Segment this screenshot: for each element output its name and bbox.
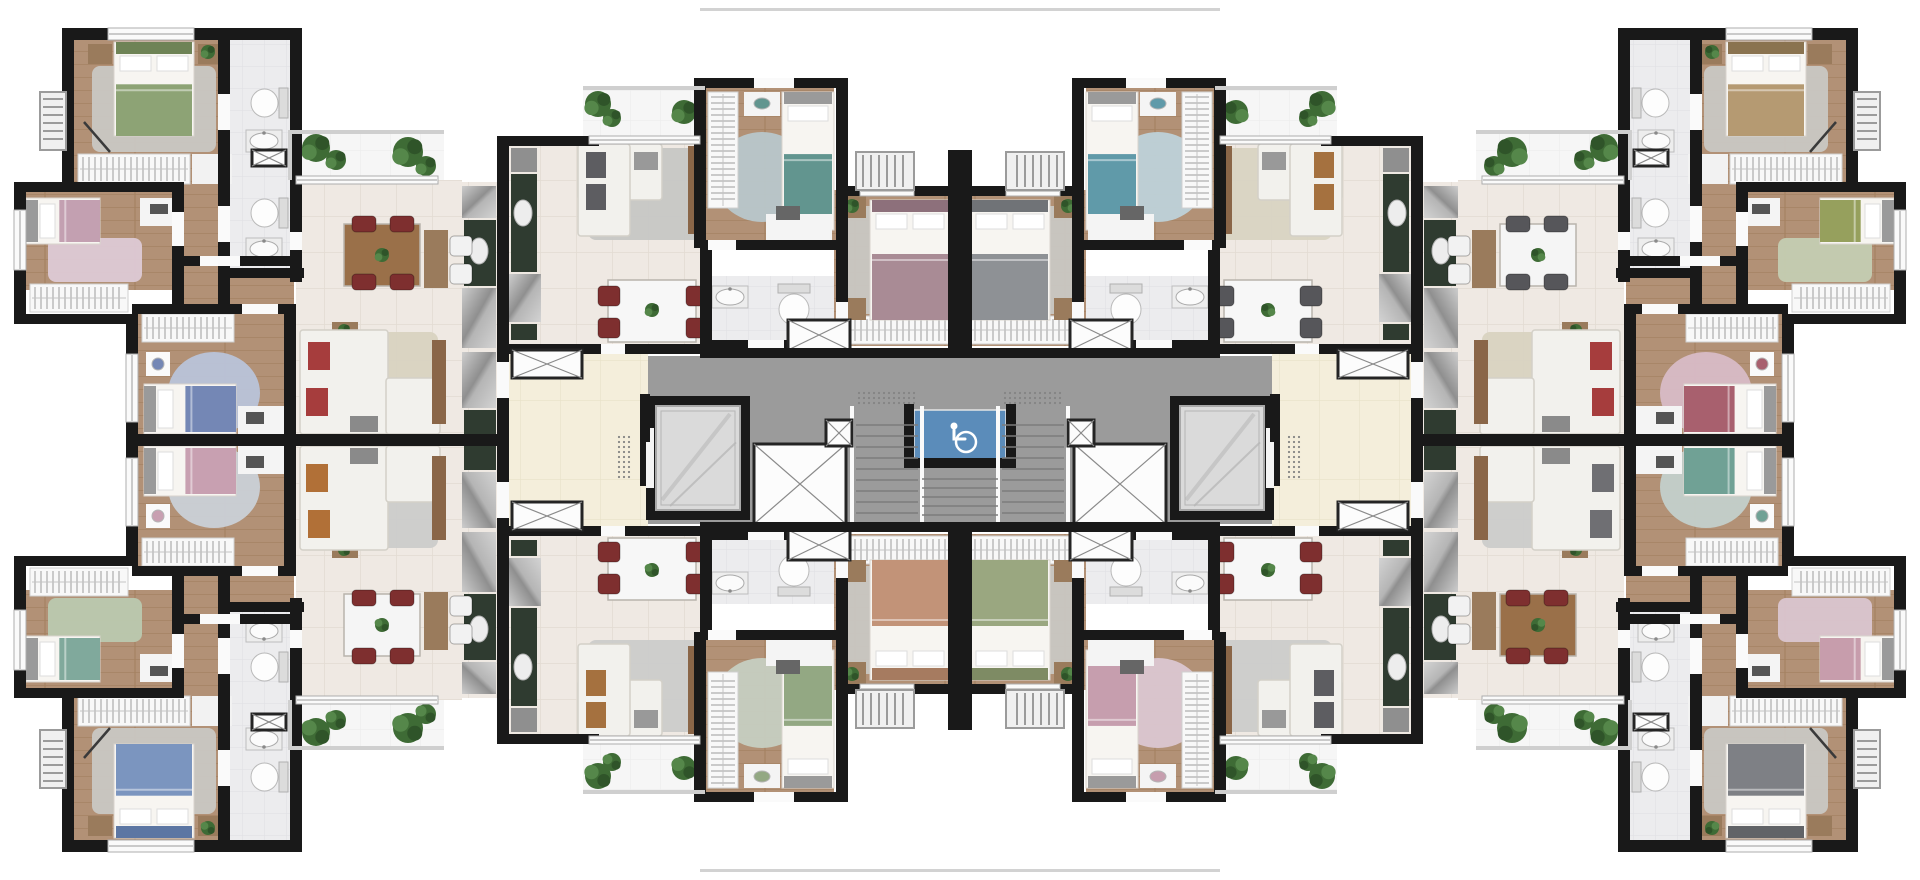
decor [470, 616, 488, 642]
floor [1379, 274, 1411, 322]
floor [1680, 256, 1720, 266]
chair [598, 318, 620, 338]
wall [497, 518, 509, 744]
wall [1616, 602, 1692, 612]
wall [1690, 786, 1702, 844]
wall [1784, 314, 1906, 324]
sofa [1480, 446, 1534, 502]
wall [836, 196, 848, 302]
balcony-railing [1476, 130, 1632, 134]
rug [48, 238, 142, 282]
toilet [1632, 652, 1669, 682]
chair [1506, 274, 1530, 290]
chair [1448, 624, 1470, 644]
balcony-railing [288, 130, 292, 180]
floor [462, 186, 496, 218]
bed [26, 198, 100, 244]
elevator-cab [656, 406, 740, 510]
chair [1448, 236, 1470, 256]
window [1482, 696, 1624, 704]
louver-window [1006, 152, 1064, 190]
floor [601, 526, 625, 536]
balcony-railing [288, 746, 444, 750]
floor [308, 342, 330, 370]
chair [1506, 216, 1530, 232]
floor [432, 340, 446, 424]
window [14, 610, 26, 670]
wall [14, 556, 136, 566]
floor [1314, 670, 1334, 696]
rug [48, 598, 142, 642]
wall [497, 398, 509, 440]
bed [970, 200, 1050, 320]
chair [1544, 648, 1568, 664]
bed [114, 42, 194, 136]
rug [1778, 598, 1872, 642]
sink [1172, 572, 1208, 594]
floor [1690, 94, 1702, 130]
wall [1006, 404, 1016, 466]
floor [462, 288, 496, 348]
window [1782, 354, 1794, 422]
chair [1506, 648, 1530, 664]
wall [700, 522, 1220, 532]
balcony-railing [1215, 86, 1337, 90]
floor [172, 634, 184, 668]
louver-window [1006, 690, 1064, 728]
floor [586, 670, 606, 696]
balcony-railing [1628, 130, 1632, 180]
floor [511, 540, 537, 556]
bed [1820, 636, 1894, 682]
floor [754, 78, 794, 88]
bed [1820, 198, 1894, 244]
toilet [1632, 198, 1669, 228]
closet-hangers [1686, 314, 1778, 342]
toilet [1632, 762, 1669, 792]
wall [128, 434, 509, 440]
wall [172, 668, 184, 690]
floor [1424, 532, 1458, 592]
wall [1411, 440, 1423, 482]
wall [172, 246, 184, 314]
floor [246, 456, 264, 468]
sink [712, 286, 748, 308]
wall [1411, 136, 1423, 362]
louver-window [1854, 730, 1880, 788]
floor [200, 256, 240, 266]
floor [1808, 816, 1832, 836]
chair [390, 590, 414, 606]
chair [1544, 590, 1568, 606]
floor [88, 816, 112, 836]
wall [1072, 578, 1084, 684]
service-shaft [1070, 320, 1132, 350]
window [296, 696, 438, 704]
window [1894, 610, 1906, 670]
chair [450, 596, 472, 616]
chair [1300, 574, 1322, 594]
wall [184, 614, 200, 624]
wall [497, 440, 509, 482]
closet-hangers [30, 568, 128, 596]
floor [1126, 78, 1166, 88]
window [296, 176, 438, 184]
wall [1782, 526, 1794, 566]
floor-grate [618, 436, 630, 478]
floor [700, 8, 1220, 11]
floor [1472, 230, 1496, 288]
floor [150, 666, 168, 676]
floor [218, 750, 230, 786]
wall [128, 440, 509, 446]
window [14, 210, 26, 270]
floor [708, 630, 736, 640]
decor [1756, 510, 1768, 522]
floor [1542, 448, 1570, 464]
service-shaft [1068, 420, 1094, 446]
wall [228, 602, 304, 612]
decor [754, 771, 770, 782]
floor [424, 592, 448, 650]
service-shaft [512, 350, 582, 378]
wall [1690, 36, 1702, 94]
wall [1270, 394, 1280, 442]
closet-hangers [708, 672, 738, 788]
floor [509, 274, 541, 322]
louver-window [1854, 92, 1880, 150]
wall [1690, 674, 1702, 750]
wall [284, 304, 296, 440]
wall [1624, 614, 1680, 624]
decor [1756, 358, 1768, 370]
decor [152, 358, 164, 370]
bed [26, 636, 100, 682]
floor [290, 232, 302, 250]
service-shaft [1634, 150, 1668, 166]
floor [1424, 472, 1458, 528]
balcony-railing [583, 790, 705, 794]
floor [497, 482, 509, 518]
wall [1411, 398, 1423, 440]
floor [306, 388, 328, 416]
floor [497, 362, 509, 398]
service-shaft [1070, 530, 1132, 560]
wall [240, 614, 296, 624]
floor [218, 94, 230, 130]
closet-hangers [1730, 154, 1842, 184]
floor [776, 206, 800, 220]
wall [625, 526, 706, 536]
floor [1383, 148, 1409, 172]
floorplan-canvas [0, 0, 1920, 880]
service-shaft [252, 714, 286, 730]
floor [1642, 304, 1678, 314]
wall [1736, 566, 1748, 634]
wall [1321, 136, 1423, 146]
decor [1150, 98, 1166, 109]
wall [1208, 536, 1220, 634]
balcony-railing [288, 700, 292, 750]
wall [1784, 556, 1906, 566]
bed [970, 560, 1050, 680]
toilet [251, 198, 288, 228]
service-shaft [1634, 714, 1668, 730]
floor [1262, 710, 1286, 728]
floor [432, 456, 446, 540]
floor [150, 204, 168, 214]
wall [1720, 614, 1736, 624]
sink [712, 572, 748, 594]
chair [1448, 264, 1470, 284]
window [589, 736, 700, 744]
floor [308, 510, 330, 538]
decor [1432, 616, 1450, 642]
floor [1808, 44, 1832, 64]
wall [1736, 246, 1748, 314]
closet-hangers [1730, 696, 1842, 726]
floor [242, 566, 278, 576]
wall [700, 246, 712, 344]
wall [836, 78, 848, 198]
rug [1778, 238, 1872, 282]
balcony-railing [583, 86, 705, 90]
wall [218, 130, 230, 206]
chair [598, 574, 620, 594]
wall [1072, 682, 1084, 802]
chair [352, 590, 376, 606]
floor [1590, 510, 1612, 538]
wall [694, 82, 706, 248]
wall [1214, 526, 1295, 536]
floor [200, 614, 240, 624]
floor [700, 869, 1220, 872]
wall [1736, 668, 1748, 690]
wall [126, 314, 138, 354]
floor [218, 206, 230, 242]
balcony-railing [1628, 700, 1632, 750]
floor [218, 638, 230, 674]
floor [1383, 324, 1409, 340]
floor [511, 148, 537, 172]
wall [1411, 434, 1792, 440]
floor [246, 412, 264, 424]
floor [1411, 482, 1423, 518]
chair [1506, 590, 1530, 606]
window [1782, 458, 1794, 526]
wall [948, 150, 960, 350]
chair [352, 648, 376, 664]
wall [640, 394, 650, 442]
floor-plan-svg [0, 0, 1920, 880]
wall [126, 526, 138, 566]
wall [1321, 734, 1423, 744]
wall [240, 256, 296, 266]
chair [598, 542, 620, 562]
floor [1295, 526, 1319, 536]
wall [948, 530, 960, 730]
closet-hangers [1792, 284, 1890, 312]
toilet [1632, 88, 1669, 118]
sofa [1480, 378, 1534, 434]
wall [1072, 78, 1084, 198]
floor [462, 352, 496, 408]
wall [1624, 256, 1680, 266]
wall [497, 136, 509, 362]
wall [1624, 440, 1636, 576]
wall [960, 150, 972, 350]
floor [1262, 152, 1286, 170]
toilet [251, 88, 288, 118]
floor [1690, 638, 1702, 674]
bed [144, 384, 236, 434]
floor [172, 212, 184, 246]
floor [1656, 412, 1674, 424]
floor [1126, 792, 1166, 802]
wall [736, 240, 846, 250]
decor [754, 98, 770, 109]
closet-hangers [142, 538, 234, 566]
bed [870, 200, 950, 320]
louver-window [856, 690, 914, 728]
floor [1656, 456, 1674, 468]
floor [1472, 592, 1496, 650]
floor [306, 464, 328, 492]
window [108, 28, 194, 40]
service-shaft [788, 530, 850, 560]
window [1220, 136, 1331, 144]
service-shaft [1338, 350, 1408, 378]
accessible-platform [914, 410, 1006, 460]
closet-hangers [1686, 538, 1778, 566]
closet-hangers [1182, 672, 1212, 788]
balcony-railing [1215, 790, 1337, 794]
service-shaft [788, 320, 850, 350]
floor [1592, 388, 1614, 416]
closet-hangers [1792, 568, 1890, 596]
wall [1782, 314, 1794, 354]
floor [1642, 566, 1678, 576]
floor [1752, 666, 1770, 676]
chair [598, 286, 620, 306]
floor [464, 446, 496, 470]
wall [228, 268, 304, 278]
floor [1314, 152, 1334, 178]
wall [1208, 246, 1220, 344]
closet-hangers [30, 284, 128, 312]
wall [960, 530, 972, 730]
bed [144, 446, 236, 496]
floor [350, 416, 378, 432]
wall [284, 440, 296, 576]
floor [1120, 206, 1144, 220]
sofa [386, 446, 440, 502]
wall [1736, 190, 1748, 212]
floor [1184, 630, 1212, 640]
floor [1379, 558, 1411, 606]
toilet [251, 762, 288, 792]
service-shaft [1338, 502, 1408, 530]
decor [514, 200, 532, 226]
window [589, 136, 700, 144]
wall [1214, 632, 1226, 798]
decor [152, 510, 164, 522]
decor [1150, 771, 1166, 782]
window [1894, 210, 1906, 270]
floor [586, 184, 606, 210]
bed [114, 744, 194, 838]
floor [1690, 206, 1702, 242]
window [126, 354, 138, 422]
window [1726, 840, 1812, 852]
wall [1624, 304, 1636, 440]
floor [350, 448, 378, 464]
louver-window [856, 152, 914, 190]
floor [242, 304, 278, 314]
chair [352, 274, 376, 290]
chair [450, 236, 472, 256]
chair [1448, 596, 1470, 616]
wall [14, 182, 184, 192]
floor [1411, 362, 1423, 398]
wall [1214, 344, 1295, 354]
wall [904, 404, 914, 466]
service-shaft [754, 444, 846, 524]
floor [708, 240, 736, 250]
floor [1590, 342, 1612, 370]
chair [1300, 542, 1322, 562]
floor [1383, 708, 1409, 732]
window [1220, 736, 1331, 744]
floor [1752, 204, 1770, 214]
floor [1542, 416, 1570, 432]
wall [497, 136, 599, 146]
chair [390, 216, 414, 232]
floor [511, 708, 537, 732]
wall [218, 36, 230, 94]
louver-window [40, 730, 66, 788]
wall [1736, 182, 1906, 192]
floor [462, 532, 496, 592]
decor [1388, 200, 1406, 226]
floor [586, 152, 606, 178]
wall [1720, 256, 1736, 266]
floor [511, 324, 537, 340]
louver-window [40, 92, 66, 150]
service-shaft [1074, 444, 1166, 524]
wall [1411, 518, 1423, 744]
chair [450, 264, 472, 284]
closet-hangers [78, 696, 190, 726]
chair [390, 648, 414, 664]
wall [1074, 630, 1184, 640]
stair-railing [996, 406, 1000, 526]
wall [836, 682, 848, 802]
window [108, 840, 194, 852]
floor [601, 344, 625, 354]
service-shaft [512, 502, 582, 530]
wall [184, 256, 200, 266]
bed [870, 560, 950, 680]
floor [1424, 352, 1458, 408]
bed [1684, 384, 1776, 434]
window [126, 458, 138, 526]
decor [1432, 238, 1450, 264]
window [1482, 176, 1624, 184]
chair [1300, 318, 1322, 338]
floor [586, 702, 606, 728]
wall [1736, 688, 1906, 698]
